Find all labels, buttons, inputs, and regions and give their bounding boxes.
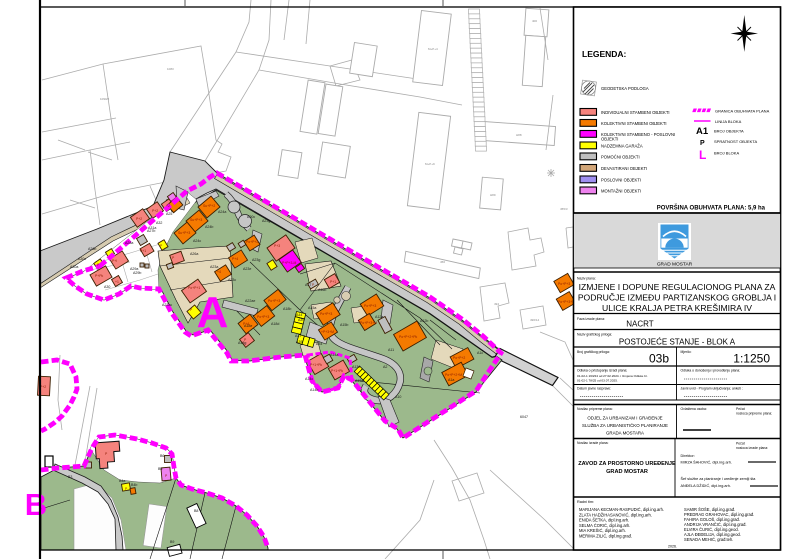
svg-text:SELMA ĆORIĆ, dipl.ing.arh.: SELMA ĆORIĆ, dipl.ing.arh. bbox=[579, 523, 630, 528]
svg-text:A30a: A30a bbox=[70, 265, 78, 269]
svg-text:B4b: B4b bbox=[131, 483, 137, 487]
svg-text:Odluka o donošenju i provođenj: Odluka o donošenju i provođenju plana: bbox=[681, 369, 741, 373]
svg-text:+4: +4 bbox=[217, 270, 221, 274]
svg-text:GEODETSKA PODLOGA: GEODETSKA PODLOGA bbox=[601, 86, 649, 91]
svg-text:494: 494 bbox=[494, 302, 499, 306]
svg-text:A26b: A26b bbox=[88, 247, 96, 251]
svg-text:GRAD MOSTAR: GRAD MOSTAR bbox=[657, 262, 693, 268]
svg-text:496/14: 496/14 bbox=[530, 318, 540, 322]
svg-text:Javni uvid - Program uključiva: Javni uvid - Program uključivanja; anket… bbox=[681, 387, 743, 391]
svg-text:B4a: B4a bbox=[119, 479, 125, 483]
svg-text:nosioca izrade plana:: nosioca izrade plana: bbox=[736, 446, 768, 450]
svg-text:B6: B6 bbox=[160, 454, 164, 458]
svg-text:SLUŽBA ZA URBANISTIČKO PLANIRA: SLUŽBA ZA URBANISTIČKO PLANIRANJE bbox=[582, 423, 668, 428]
svg-text:+P+3+M: +P+3+M bbox=[321, 330, 334, 334]
svg-text:GRANICA OBUHVATA PLANA: GRANICA OBUHVATA PLANA bbox=[715, 109, 770, 114]
svg-text:A26a: A26a bbox=[190, 252, 198, 256]
svg-text:A32: A32 bbox=[156, 221, 162, 225]
svg-text:Po+P+3: Po+P+3 bbox=[268, 299, 280, 303]
svg-text:A23g: A23g bbox=[252, 258, 260, 262]
svg-text:ZLATA HADŽIHASANOVIĆ, dipl.ing: ZLATA HADŽIHASANOVIĆ, dipl.ing.arh. bbox=[579, 512, 652, 517]
svg-text:03b: 03b bbox=[649, 352, 669, 366]
svg-text:Odluka o pristupanju izradi pl: Odluka o pristupanju izradi plana: bbox=[577, 369, 627, 373]
svg-text:+2: +2 bbox=[166, 204, 170, 208]
svg-text:6047: 6047 bbox=[520, 415, 528, 419]
svg-text:A23g: A23g bbox=[262, 219, 270, 223]
svg-text:GRAD MOSTAR: GRAD MOSTAR bbox=[606, 469, 648, 475]
svg-text:DEVASTIRANI OBJEKTI: DEVASTIRANI OBJEKTI bbox=[601, 166, 647, 171]
svg-text:H89: H89 bbox=[490, 193, 496, 197]
svg-text:Pečat: Pečat bbox=[736, 407, 745, 411]
svg-text:SENADA MEHIĆ, građ.teh.: SENADA MEHIĆ, građ.teh. bbox=[684, 537, 733, 542]
svg-text:1090/2: 1090/2 bbox=[100, 97, 110, 101]
svg-text:POSTOJEĆE STANJE - BLOK A: POSTOJEĆE STANJE - BLOK A bbox=[619, 338, 736, 347]
svg-text:456: 456 bbox=[440, 260, 445, 264]
svg-text:Broj grafičkog priloga:: Broj grafičkog priloga: bbox=[577, 350, 610, 354]
svg-text:NACRT: NACRT bbox=[626, 320, 654, 329]
svg-text:Mjerilo:: Mjerilo: bbox=[681, 350, 692, 354]
svg-text:POVRŠINA OBUHVATA PLANA: 5,9 h: POVRŠINA OBUHVATA PLANA: 5,9 ha bbox=[657, 204, 766, 212]
svg-text:Po+P+2+M: Po+P+2+M bbox=[445, 373, 462, 377]
svg-text:Po+P+2: Po+P+2 bbox=[453, 356, 465, 360]
svg-text:A24b: A24b bbox=[205, 225, 213, 229]
svg-text:POSLOVNI OBJEKTI: POSLOVNI OBJEKTI bbox=[601, 177, 641, 182]
svg-text:A44: A44 bbox=[296, 313, 302, 317]
svg-text:A24c: A24c bbox=[193, 239, 201, 243]
svg-text:A16b: A16b bbox=[318, 288, 326, 292]
svg-text:P+1+Pk: P+1+Pk bbox=[331, 369, 343, 373]
svg-text:M+P+9: M+P+9 bbox=[425, 162, 435, 166]
svg-text:01-02-1 163/24 od 27.02.2024.: 01-02-1 163/24 od 27.02.2024. i Izmjena … bbox=[577, 374, 648, 378]
svg-text:LEGENDA:: LEGENDA: bbox=[582, 49, 627, 59]
svg-text:ENIDA ŠETKA, dipl.ing.arh.: ENIDA ŠETKA, dipl.ing.arh. bbox=[579, 518, 629, 523]
svg-text:A23e: A23e bbox=[243, 267, 251, 271]
svg-text:455/3: 455/3 bbox=[560, 207, 568, 211]
svg-text:Su+P+3: Su+P+3 bbox=[178, 231, 190, 235]
svg-text:A39: A39 bbox=[296, 340, 302, 344]
svg-text:A17: A17 bbox=[305, 283, 311, 287]
svg-text:L: L bbox=[699, 148, 706, 162]
svg-text:Radni tim:: Radni tim: bbox=[577, 500, 594, 504]
svg-text:P+1: P+1 bbox=[330, 280, 336, 284]
svg-text:Šef službe za planiranje i ure: Šef službe za planiranje i uređenje zeml… bbox=[681, 476, 757, 481]
svg-text:Faza izrade plana:: Faza izrade plana: bbox=[577, 317, 605, 321]
svg-text:P+I: P+I bbox=[112, 259, 117, 263]
svg-text:Naziv grafičkog priloga:: Naziv grafičkog priloga: bbox=[577, 333, 612, 337]
svg-text:KOLEKTIVNI STAMBENI OBJEKTI: KOLEKTIVNI STAMBENI OBJEKTI bbox=[601, 121, 667, 126]
svg-text:B5: B5 bbox=[158, 467, 162, 471]
svg-text:+1: +1 bbox=[115, 280, 119, 284]
svg-text:Pečat: Pečat bbox=[736, 442, 745, 446]
svg-text:Po+P+3: Po+P+3 bbox=[320, 312, 332, 316]
svg-text:ODJEL ZA URBANIZAM I GRAĐENJE: ODJEL ZA URBANIZAM I GRAĐENJE bbox=[587, 416, 662, 421]
svg-text:Po+P+2: Po+P+2 bbox=[246, 240, 258, 244]
svg-text:ZAVOD ZA PROSTORNO UREĐENJE: ZAVOD ZA PROSTORNO UREĐENJE bbox=[578, 461, 676, 467]
svg-text:MARIJANA KECMAN-RASPUDIĆ, dipl: MARIJANA KECMAN-RASPUDIĆ, dipl.ing.arh. bbox=[579, 507, 664, 512]
svg-text:P+2: P+2 bbox=[152, 209, 158, 213]
svg-text:ANĐELA DŽIDIĆ, dipl.ing.arh.: ANĐELA DŽIDIĆ, dipl.ing.arh. bbox=[681, 483, 731, 488]
svg-text:B8: B8 bbox=[194, 509, 198, 513]
svg-text:Po+P+3: Po+P+3 bbox=[257, 315, 269, 319]
svg-text:MONTAŽNI OBJEKTI: MONTAŽNI OBJEKTI bbox=[601, 188, 641, 193]
svg-text:OBJEKTI: OBJEKTI bbox=[601, 137, 618, 142]
svg-text:A14b: A14b bbox=[310, 388, 318, 392]
svg-text:Su+P+3: Su+P+3 bbox=[190, 218, 202, 222]
svg-text:A18b: A18b bbox=[283, 307, 291, 311]
svg-text:A12b: A12b bbox=[420, 319, 428, 323]
svg-text:ULICE KRALJA PETRA KREŠIMIRA I: ULICE KRALJA PETRA KREŠIMIRA IV bbox=[602, 303, 752, 313]
svg-text:A34: A34 bbox=[316, 342, 322, 346]
svg-text:P+1+Pk: P+1+Pk bbox=[310, 363, 322, 367]
svg-text:A30c: A30c bbox=[78, 257, 86, 261]
svg-text:nosioca pripreme plana:: nosioca pripreme plana: bbox=[736, 412, 772, 416]
svg-text:Su+P+2: Su+P+2 bbox=[203, 204, 215, 208]
svg-text:P+2: P+2 bbox=[136, 217, 142, 221]
svg-text:P+4: P+4 bbox=[243, 322, 249, 326]
svg-text:A10: A10 bbox=[395, 395, 401, 399]
svg-text:A25: A25 bbox=[166, 212, 172, 216]
svg-text:Po+P+3: Po+P+3 bbox=[558, 282, 570, 286]
svg-text:BROJ OBJEKTA: BROJ OBJEKTA bbox=[714, 129, 744, 134]
svg-text:A15b: A15b bbox=[340, 323, 348, 327]
svg-text:A37: A37 bbox=[295, 334, 301, 338]
svg-text:B3: B3 bbox=[68, 475, 72, 479]
svg-text:A00c: A00c bbox=[247, 215, 255, 219]
svg-text:P+Pk: P+Pk bbox=[95, 274, 104, 278]
svg-text:P: P bbox=[700, 140, 705, 147]
svg-text:Ovlaštena osoba:: Ovlaštena osoba: bbox=[681, 407, 707, 411]
svg-text:POMOĆNI OBJEKTI: POMOĆNI OBJEKTI bbox=[601, 154, 640, 159]
svg-text:INDIVIDUALNI STAMBENI OBJEKTI: INDIVIDUALNI STAMBENI OBJEKTI bbox=[601, 110, 670, 115]
svg-text:Nosilac pripreme plana:: Nosilac pripreme plana: bbox=[577, 407, 613, 411]
svg-text:A1: A1 bbox=[696, 126, 709, 137]
svg-text:PODRUČJE IZMEĐU PARTIZANSKOG G: PODRUČJE IZMEĐU PARTIZANSKOG GROBLJA I bbox=[578, 293, 776, 303]
svg-text:IZMJENE I DOPUNE REGULACIONOG: IZMJENE I DOPUNE REGULACIONOG PLANA ZA bbox=[579, 282, 776, 292]
svg-text:SPRATNOST OBJEKTA: SPRATNOST OBJEKTA bbox=[714, 139, 757, 144]
svg-text:A30: A30 bbox=[104, 285, 110, 289]
svg-text:Po+P+3+M: Po+P+3+M bbox=[360, 321, 377, 325]
svg-text:BROJ BLOKA: BROJ BLOKA bbox=[714, 151, 739, 156]
svg-text:Direktor:: Direktor: bbox=[681, 454, 695, 458]
svg-text:B9: B9 bbox=[170, 540, 174, 544]
svg-text:Datum javne rasprave:: Datum javne rasprave: bbox=[577, 387, 611, 391]
svg-text:A13e: A13e bbox=[352, 365, 360, 369]
svg-text:2026.: 2026. bbox=[668, 545, 677, 549]
svg-text:1:1250: 1:1250 bbox=[733, 352, 770, 366]
svg-text:A1a: A1a bbox=[448, 378, 454, 382]
svg-text:GRADA MOSTARA: GRADA MOSTARA bbox=[606, 431, 644, 436]
svg-text:A39: A39 bbox=[298, 318, 304, 322]
svg-text:A23a: A23a bbox=[210, 265, 218, 269]
svg-text:Po+P+3+M: Po+P+3+M bbox=[558, 300, 575, 304]
svg-text:Naziv plana:: Naziv plana: bbox=[577, 277, 596, 281]
svg-text:A15a: A15a bbox=[308, 306, 316, 310]
svg-text:P+P+3-M: P+P+3-M bbox=[282, 261, 296, 265]
svg-text:Po+P+2+Pk: Po+P+2+Pk bbox=[399, 335, 417, 339]
svg-text:P+1: P+1 bbox=[140, 249, 146, 253]
svg-text:A23c: A23c bbox=[228, 278, 236, 282]
svg-text:1083: 1083 bbox=[167, 67, 174, 71]
svg-text:A24a: A24a bbox=[218, 210, 226, 214]
svg-text:A14a: A14a bbox=[330, 353, 338, 357]
svg-text:A1c: A1c bbox=[477, 351, 483, 355]
svg-text:Nosilac izrade plana:: Nosilac izrade plana: bbox=[577, 441, 609, 445]
svg-text:A: A bbox=[197, 288, 229, 337]
svg-text:A28a: A28a bbox=[125, 241, 133, 245]
svg-text:M+P+4: M+P+4 bbox=[428, 47, 438, 51]
svg-text:MERIMA ZILIĆ, dipl.ing.građ.: MERIMA ZILIĆ, dipl.ing.građ. bbox=[579, 533, 632, 538]
svg-text:MIA KREŠIĆ, dipl.ing.arh.: MIA KREŠIĆ, dipl.ing.arh. bbox=[579, 528, 626, 533]
svg-text:NADZEMNA GARAŽA: NADZEMNA GARAŽA bbox=[601, 143, 643, 148]
svg-text:P+4: P+4 bbox=[232, 257, 238, 261]
svg-text:P+3: P+3 bbox=[274, 244, 280, 248]
svg-text:01-02-1 78/25 od 03.07.2025.: 01-02-1 78/25 od 03.07.2025. bbox=[577, 379, 618, 383]
svg-text:MIRZA ŠAHOVIĆ, dipl.ing.arh.: MIRZA ŠAHOVIĆ, dipl.ing.arh. bbox=[681, 460, 733, 465]
svg-text:A18d: A18d bbox=[271, 322, 279, 326]
svg-text:A22ae: A22ae bbox=[245, 299, 255, 303]
svg-text:B: B bbox=[25, 487, 47, 522]
svg-text:400: 400 bbox=[532, 19, 537, 23]
svg-text:A11: A11 bbox=[388, 348, 394, 352]
svg-text:A14c: A14c bbox=[305, 377, 313, 381]
svg-text:H88: H88 bbox=[516, 133, 522, 137]
svg-text:A2: A2 bbox=[383, 365, 387, 369]
svg-text:Po+P+3: Po+P+3 bbox=[364, 304, 376, 308]
svg-text:A12a: A12a bbox=[375, 315, 383, 319]
svg-text:A13a: A13a bbox=[355, 379, 363, 383]
svg-text:A31a: A31a bbox=[148, 226, 156, 230]
svg-text:A29b: A29b bbox=[133, 271, 141, 275]
svg-text:A22ac: A22ac bbox=[162, 303, 172, 307]
svg-text:LINIJA BLOKA: LINIJA BLOKA bbox=[715, 119, 742, 124]
